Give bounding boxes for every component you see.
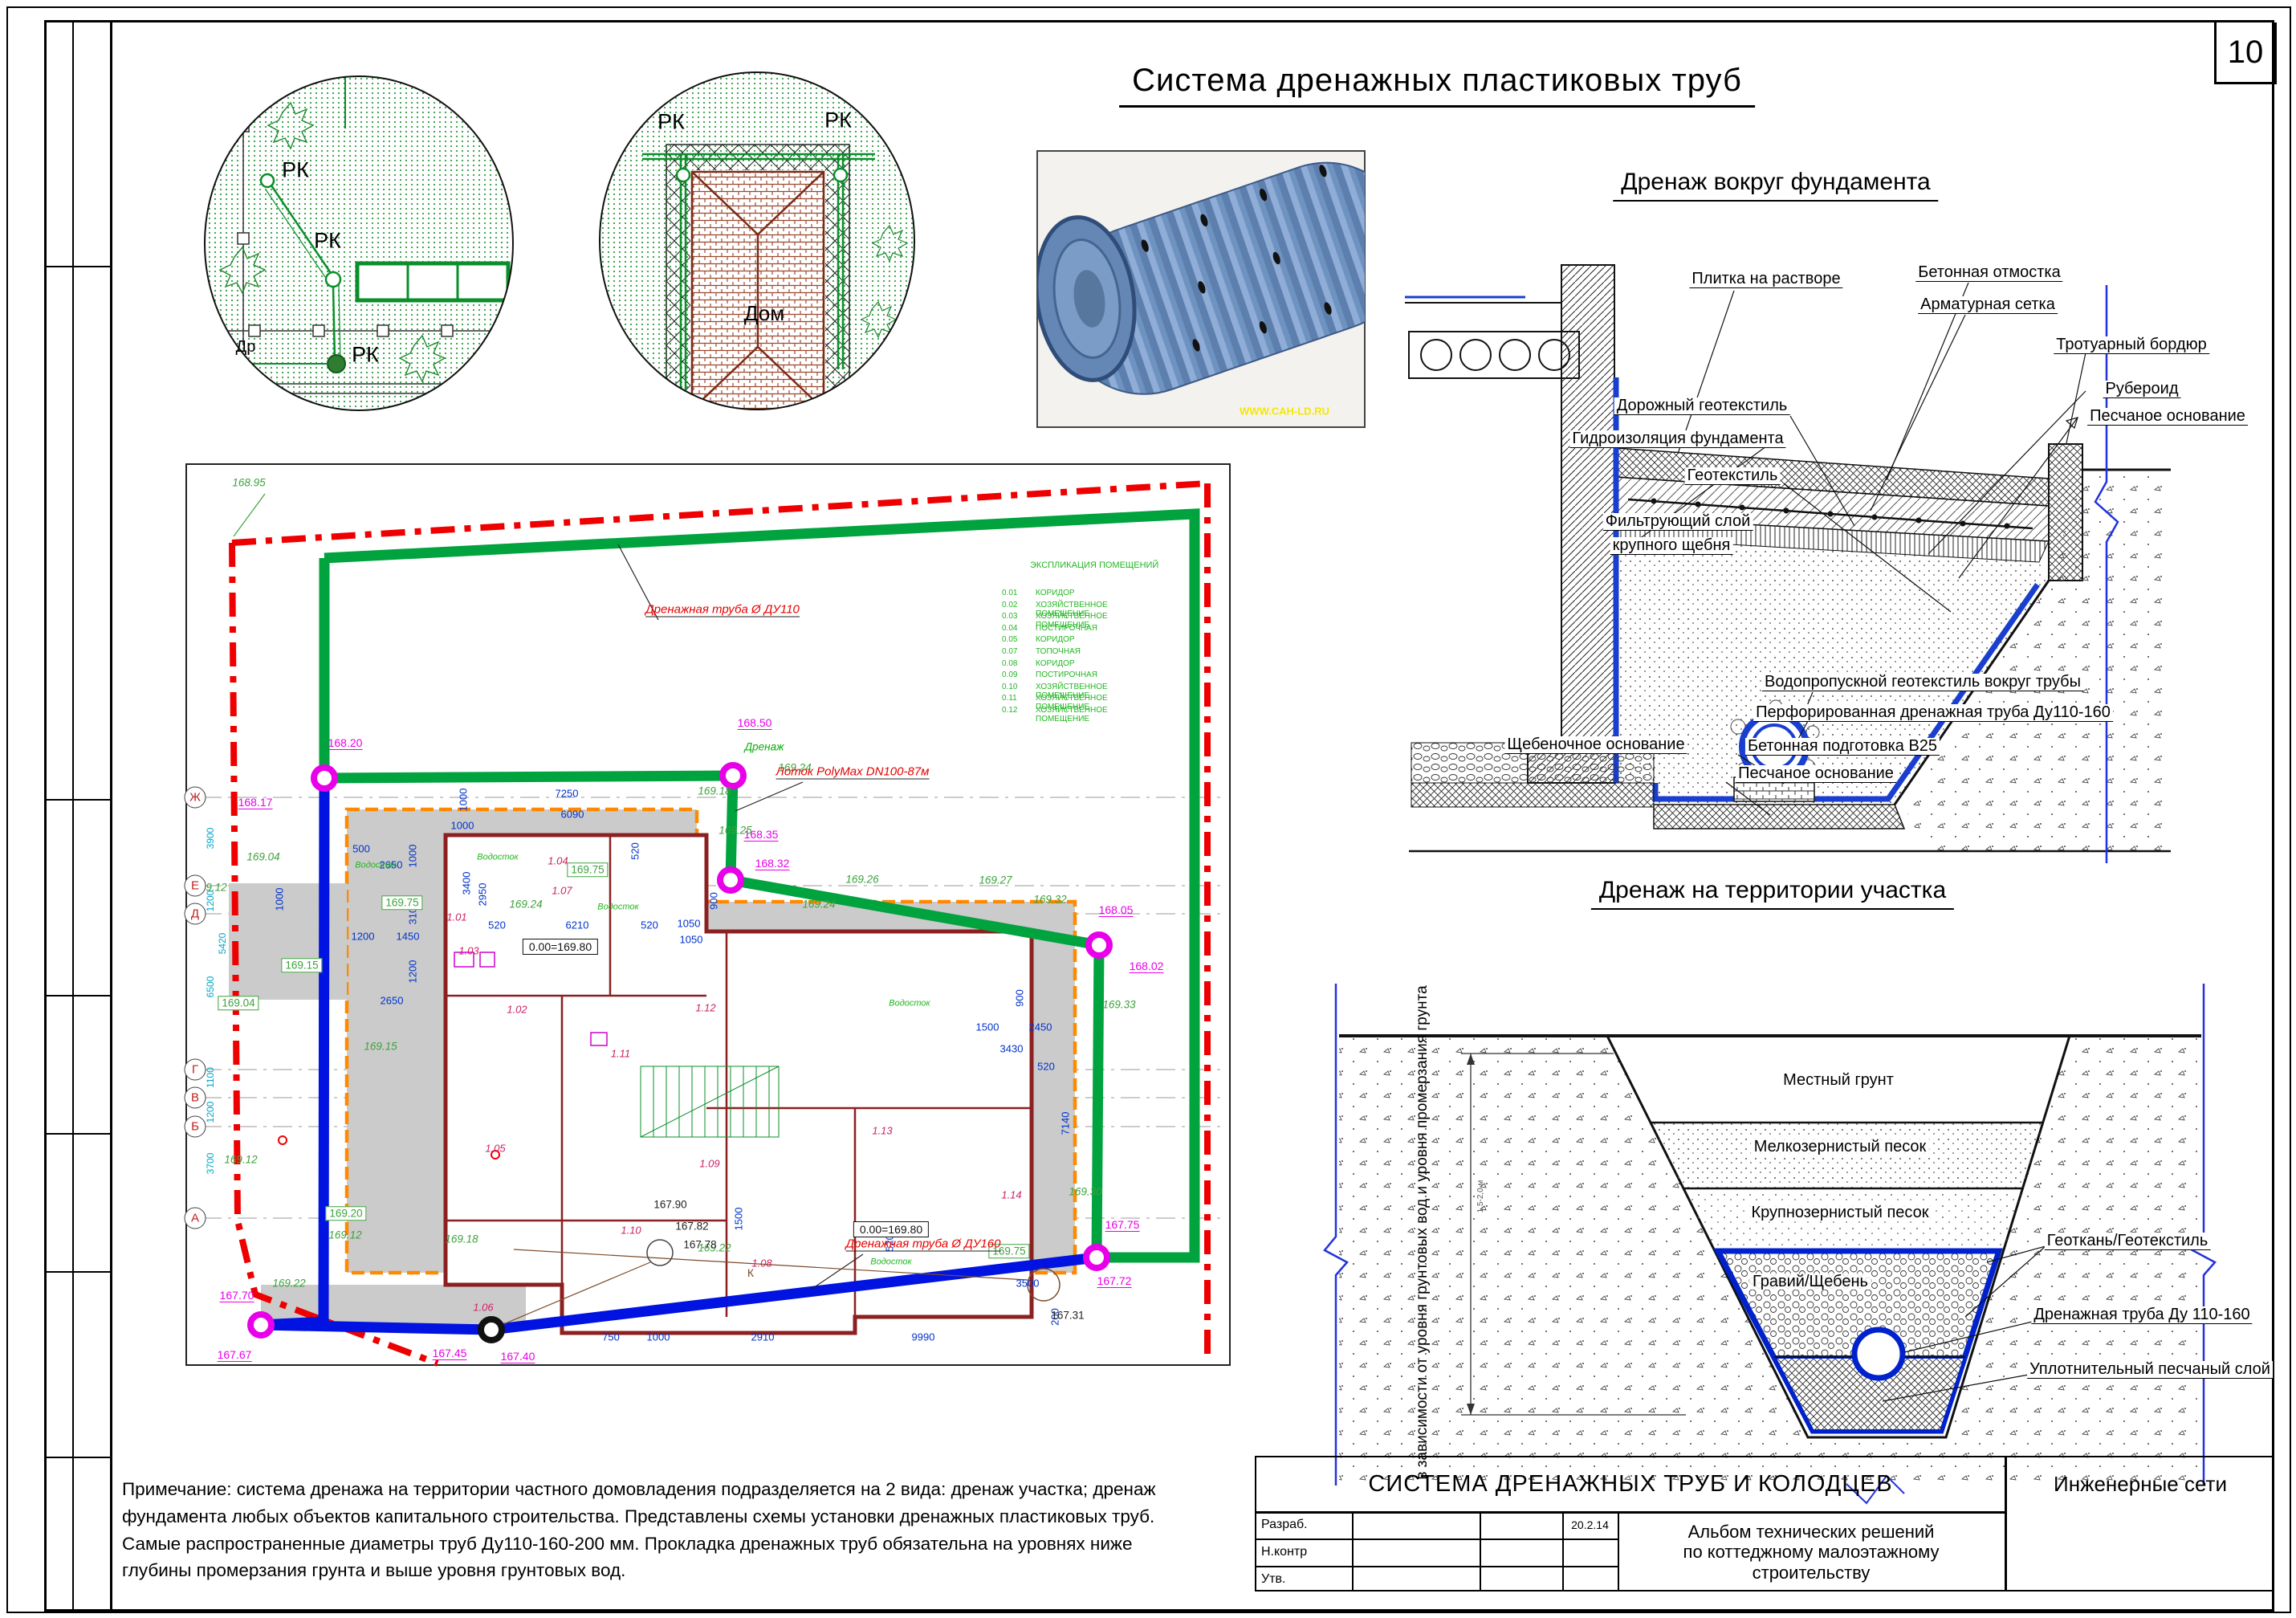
plan-dimension: 6210 bbox=[566, 920, 589, 931]
explication-room-number: 0.11 bbox=[1002, 694, 1017, 703]
foundation-label: Геотекстиль bbox=[1685, 467, 1781, 485]
plan-room-number: 1.01 bbox=[446, 912, 466, 923]
plan-dimension: 1500 bbox=[976, 1022, 999, 1033]
plan-vodostok-label: Водосток bbox=[477, 854, 519, 862]
plan-elevation-black: 167.31 bbox=[1051, 1310, 1084, 1321]
foundation-label: Арматурная сетка bbox=[1918, 296, 2058, 314]
plan-elevation-magenta: 167.40 bbox=[501, 1351, 535, 1363]
plan-dimension: 520 bbox=[1037, 1062, 1055, 1072]
foundation-label: Песчаное основание bbox=[2087, 408, 2248, 426]
house-label: Дом bbox=[744, 303, 784, 324]
plan-elevation-magenta: 167.70 bbox=[220, 1290, 254, 1302]
explication-room-number: 0.02 bbox=[1002, 601, 1017, 609]
plan-room-number: 1.07 bbox=[552, 886, 572, 896]
plan-elevation-magenta: 167.72 bbox=[1097, 1275, 1132, 1288]
foundation-label: Плитка на растворе bbox=[1689, 271, 1842, 288]
explication-room-number: 0.08 bbox=[1002, 659, 1017, 668]
plan-axis-bubble: Е bbox=[185, 875, 206, 897]
plan-elevation-magenta: 168.20 bbox=[328, 737, 363, 750]
plan-axis-dimension: 1200 bbox=[206, 891, 215, 912]
plan-dimension: 1050 bbox=[678, 919, 701, 929]
explication-room-name: ПОСТИРОЧНАЯ bbox=[1036, 670, 1097, 679]
rk-label: РК bbox=[824, 110, 852, 132]
plan-dimension: 2910 bbox=[751, 1332, 775, 1343]
plan-dimension: 2650 bbox=[381, 996, 404, 1006]
plan-dimension: 1000 bbox=[458, 789, 469, 812]
plan-dimension: 1000 bbox=[275, 888, 285, 911]
plan-elevation-green: 169.25 bbox=[719, 825, 751, 836]
plan-room-number: 1.13 bbox=[872, 1126, 892, 1136]
plan-elevation-boxed: 169.20 bbox=[325, 1206, 366, 1221]
plan-elevation-black: 167.82 bbox=[675, 1221, 708, 1232]
lotok-label: Лоток PolyMax DN100-87м bbox=[776, 766, 930, 780]
plan-drain-word: Дренаж bbox=[745, 741, 784, 752]
plan-dimension: 1050 bbox=[680, 935, 703, 945]
trench-label: Дренажная труба Ду 110-160 bbox=[2031, 1306, 2252, 1324]
plan-dimension: 2950 bbox=[478, 883, 488, 907]
explication-room-number: 0.10 bbox=[1002, 683, 1017, 691]
plan-dimension: 1200 bbox=[352, 931, 375, 942]
trench-layer-label: Гравий/Щебень bbox=[1749, 1274, 1871, 1290]
trench-side-note: в зависимости от уровня грунтовых вод и … bbox=[1412, 985, 1433, 1479]
k-label: К bbox=[747, 1267, 754, 1278]
plan-vodostok-label: Водосток bbox=[889, 1000, 930, 1009]
trench-depth-label: 1,5-2,0 м bbox=[1477, 1180, 1485, 1213]
explication-room-number: 0.01 bbox=[1002, 589, 1017, 597]
plan-axis-dimension: 3900 bbox=[206, 828, 215, 850]
titleblock-row-utv: Утв. bbox=[1261, 1566, 1350, 1593]
explication-room-number: 0.09 bbox=[1002, 670, 1017, 679]
plan-dimension: 1200 bbox=[408, 960, 418, 984]
plan-room-number: 1.14 bbox=[1001, 1190, 1021, 1200]
titleblock-album: Альбом технических решений по коттеджном… bbox=[1618, 1511, 2005, 1593]
plan-room-number: 1.11 bbox=[611, 1049, 630, 1059]
plan-elevation-magenta: 167.45 bbox=[433, 1347, 467, 1360]
plan-dimension: 7250 bbox=[556, 789, 579, 799]
plan-elevation-green: 169.12 bbox=[328, 1229, 361, 1241]
plan-axis-dimension: 1100 bbox=[206, 1067, 215, 1088]
pipe110-label: Дренажная труба Ø ДУ110 bbox=[645, 604, 800, 617]
plan-room-number: 1.06 bbox=[473, 1302, 493, 1313]
plan-dimension: 9990 bbox=[912, 1332, 935, 1343]
note-text: Примечание: система дренажа на территори… bbox=[122, 1476, 1246, 1584]
explication-title: ЭКСПЛИКАЦИЯ ПОМЕЩЕНИЙ bbox=[1030, 560, 1158, 570]
plan-vodostok-label: Водосток bbox=[870, 1258, 912, 1267]
plan-elevation-green: 169.24 bbox=[509, 899, 542, 910]
titleblock-title: СИСТЕМА ДРЕНАЖНЫХ ТРУБ И КОЛОДЦЕВ bbox=[1256, 1457, 2005, 1511]
title-block: СИСТЕМА ДРЕНАЖНЫХ ТРУБ И КОЛОДЦЕВ Инжене… bbox=[1255, 1456, 2274, 1592]
foundation-label: Бетонная отмостка bbox=[1915, 264, 2062, 282]
rk-label: РК bbox=[282, 160, 309, 181]
plan-elevation-green: 169.26 bbox=[845, 874, 878, 885]
plan-dimension: 520 bbox=[641, 920, 658, 931]
explication-room-number: 0.07 bbox=[1002, 647, 1017, 656]
plan-dimension: 1000 bbox=[647, 1332, 670, 1343]
explication-room-number: 0.03 bbox=[1002, 612, 1017, 621]
plan-elevation-green: 169.15 bbox=[364, 1041, 397, 1052]
foundation-label: Дорожный геотекстиль bbox=[1614, 397, 1790, 415]
plan-elevation-boxed: 169.04 bbox=[218, 996, 259, 1010]
foundation-label: крупного щебня bbox=[1610, 537, 1733, 555]
plan-dimension: 3400 bbox=[462, 872, 472, 895]
plan-axis-dimension: 1200 bbox=[206, 1102, 215, 1123]
plan-dimension: 1000 bbox=[408, 845, 418, 868]
plan-elevation-green: 169.12 bbox=[224, 1154, 257, 1165]
trench-label: Уплотнительный песчаный слой bbox=[2027, 1361, 2273, 1379]
pipe160-label: Дренажная труба Ø ДУ160 bbox=[846, 1238, 1001, 1252]
plan-room-number: 1.03 bbox=[458, 946, 478, 956]
plan-elevation-green: 169.24 bbox=[802, 899, 835, 910]
foundation-label: Гидроизоляция фундамента bbox=[1569, 430, 1785, 448]
plan-elevation-green: 169.18 bbox=[445, 1233, 478, 1245]
plan-dimension: 1500 bbox=[734, 1208, 744, 1231]
plan-dimension: 1000 bbox=[451, 821, 474, 831]
explication-room-name: КОРИДОР bbox=[1036, 589, 1075, 597]
foundation-label: Бетонная подготовка В25 bbox=[1745, 738, 1940, 756]
drawing-sheet: 10 Система дренажных пластиковых труб Др… bbox=[0, 0, 2296, 1618]
plan-dimension: 900 bbox=[709, 892, 719, 910]
foundation-label: Тротуарный бордюр bbox=[2054, 336, 2209, 354]
explication-room-number: 0.05 bbox=[1002, 635, 1017, 644]
plan-elevation-magenta: 168.32 bbox=[755, 858, 790, 870]
rk-label: РК bbox=[352, 344, 379, 366]
plan-dimension: 520 bbox=[630, 842, 641, 860]
plan-elevation-black: 167.78 bbox=[683, 1239, 716, 1250]
plan-room-number: 1.10 bbox=[621, 1225, 641, 1236]
plan-axis-bubble: Г bbox=[185, 1059, 206, 1081]
plan-elevation-green: 169.33 bbox=[1102, 999, 1135, 1010]
trench-layer-label: Местный грунт bbox=[1780, 1072, 1897, 1088]
titleblock-section: Инженерные сети bbox=[2005, 1457, 2276, 1511]
plan-dimension: 3500 bbox=[1016, 1278, 1040, 1289]
plan-elevation-green: 168.95 bbox=[232, 477, 265, 488]
rk-label: РК bbox=[314, 230, 341, 252]
titleblock-row-nkontr: Н.контр bbox=[1261, 1539, 1350, 1566]
plan-elevation-magenta: 168.17 bbox=[238, 797, 273, 809]
titleblock-row-razrab: Разраб. bbox=[1261, 1511, 1350, 1539]
trench-layer-label: Мелкозернистый песок bbox=[1751, 1139, 1930, 1155]
plan-vodostok-label: Водосток bbox=[355, 862, 397, 870]
plan-elevation-black: 167.90 bbox=[653, 1199, 686, 1210]
foundation-label: Водопропускной геотекстиль вокруг трубы bbox=[1762, 674, 2083, 691]
plan-elevation-green: 169.22 bbox=[272, 1278, 305, 1289]
plan-vodostok-label: Водосток bbox=[597, 903, 639, 912]
explication-room-number: 0.12 bbox=[1002, 706, 1017, 715]
plan-elevation-green: 169.18 bbox=[698, 785, 731, 797]
rk-label: РК bbox=[657, 112, 685, 133]
plan-elevation-boxed: 169.75 bbox=[567, 862, 608, 877]
photo-watermark: WWW.CAH-LD.RU bbox=[1240, 406, 1329, 417]
plan-dimension: 520 bbox=[488, 920, 506, 931]
plan-level-mark: 0.00=169.80 bbox=[523, 939, 598, 955]
plan-room-number: 1.08 bbox=[751, 1258, 771, 1269]
plan-dimension: 750 bbox=[602, 1332, 620, 1343]
plan-elevation-green: 169.04 bbox=[246, 851, 279, 862]
plan-axis-bubble: Д bbox=[185, 903, 206, 925]
plan-axis-bubble: Б bbox=[185, 1116, 206, 1138]
titleblock-date: 20.2.14 bbox=[1562, 1511, 1618, 1539]
plan-dimension: 500 bbox=[352, 844, 370, 854]
plan-room-number: 1.09 bbox=[699, 1159, 719, 1169]
foundation-label: Перфорированная дренажная труба Ду110-16… bbox=[1753, 704, 2113, 722]
plan-dimension: 7140 bbox=[1060, 1112, 1071, 1135]
explication-room-name: КОРИДОР bbox=[1036, 635, 1075, 644]
explication-room-name: ТОПОЧНАЯ bbox=[1036, 647, 1081, 656]
trench-layer-label: Крупнозернистый песок bbox=[1748, 1204, 1932, 1221]
foundation-label: Рубероид bbox=[2103, 381, 2180, 398]
plan-axis-bubble: А bbox=[185, 1208, 206, 1229]
foundation-label: Фильтрующий слой bbox=[1603, 513, 1753, 531]
plan-level-mark: 0.00=169.80 bbox=[853, 1221, 929, 1237]
plan-axis-bubble: Ж bbox=[185, 787, 206, 809]
dr-label: Др bbox=[236, 339, 256, 355]
plan-elevation-green: 169.32 bbox=[1033, 894, 1066, 905]
plan-elevation-magenta: 167.75 bbox=[1105, 1219, 1140, 1232]
explication-room-number: 0.04 bbox=[1002, 624, 1017, 633]
plan-dimension: 3430 bbox=[1000, 1044, 1024, 1054]
plan-elevation-magenta: 168.02 bbox=[1130, 960, 1164, 973]
foundation-label: Щебеночное основание bbox=[1504, 736, 1687, 754]
plan-room-number: 1.05 bbox=[485, 1143, 505, 1154]
plan-dimension: 1450 bbox=[397, 931, 420, 942]
plan-elevation-magenta: 167.67 bbox=[218, 1349, 252, 1362]
plan-elevation-magenta: 168.50 bbox=[738, 717, 772, 730]
explication-room-name: ПОСТИРОЧНАЯ bbox=[1036, 624, 1097, 633]
plan-elevation-green: 169.30 bbox=[1069, 1186, 1101, 1197]
plan-axis-dimension: 3700 bbox=[206, 1153, 215, 1175]
plan-elevation-green: 169.27 bbox=[979, 874, 1012, 886]
plan-room-number: 1.04 bbox=[548, 856, 568, 866]
plan-axis-dimension: 6500 bbox=[206, 976, 215, 998]
foundation-label: Песчаное основание bbox=[1736, 765, 1896, 783]
plan-elevation-boxed: 169.15 bbox=[281, 958, 322, 972]
plan-room-number: 1.02 bbox=[507, 1005, 527, 1015]
plan-axis-bubble: В bbox=[185, 1087, 206, 1109]
explication-room-name: ХОЗЯЙСТВЕННОЕ ПОМЕЩЕНИЕ bbox=[1036, 706, 1108, 723]
plan-elevation-magenta: 168.05 bbox=[1099, 904, 1134, 917]
trench-label: Геоткань/Геотекстиль bbox=[2045, 1233, 2211, 1250]
plan-axis-dimension: 5420 bbox=[218, 933, 227, 955]
plan-dimension: 900 bbox=[1015, 989, 1025, 1007]
plan-elevation-boxed: 169.75 bbox=[381, 895, 422, 910]
plan-room-number: 1.12 bbox=[695, 1003, 715, 1013]
labels-layer: 7250609010005205002650100010003400295052… bbox=[0, 0, 2296, 1618]
plan-dimension: 6090 bbox=[561, 809, 584, 820]
explication-room-name: КОРИДОР bbox=[1036, 659, 1075, 668]
plan-dimension: 2450 bbox=[1029, 1022, 1052, 1033]
